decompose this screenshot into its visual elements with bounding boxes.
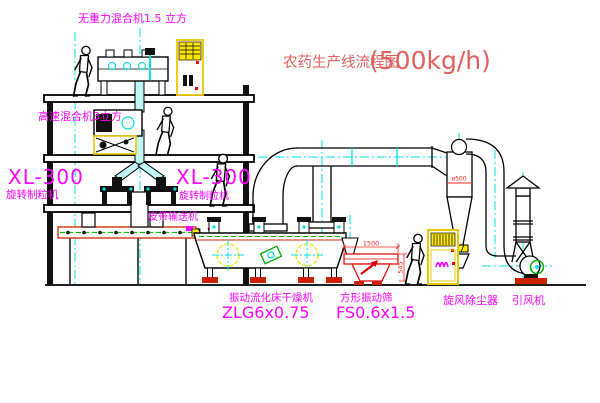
dryer-body: [194, 233, 346, 268]
cad-drawing-canvas: ø500: [0, 0, 600, 403]
dryer-legs: [202, 268, 342, 283]
label-granulator-left-model: XL-300: [8, 165, 84, 189]
screen-length-text: 1500: [363, 240, 380, 248]
rotary-granulator-left: [100, 177, 134, 205]
drawing-title-capacity: (500kg/h): [369, 46, 491, 75]
vibrating-screen: 1500 545: [342, 238, 407, 285]
label-vibrating-screen-model: FS0.6x1.5: [336, 303, 415, 322]
fan-base: [515, 278, 547, 284]
control-cabinet-top: [177, 40, 203, 95]
worker-figure: [156, 107, 174, 155]
label-fluid-bed-dryer-model: ZLG6x0.75: [222, 303, 310, 322]
alarm-light: [195, 87, 198, 90]
control-cabinet-right: [428, 230, 458, 284]
process-flow-diagram: ø500: [0, 0, 600, 403]
worker-figure: [74, 46, 93, 96]
label-granulator-right-model: XL-300: [176, 165, 252, 189]
label-gravity-mixer: 无重力混合机1.5 立方: [78, 11, 187, 25]
alarm-light: [196, 61, 199, 64]
rotary-granulator-right: [144, 177, 178, 205]
cabinet-grill: [179, 42, 201, 60]
alarm-light: [452, 262, 455, 265]
cyclone-outlet-flange: [452, 140, 467, 155]
label-granulator-right-name: 旋转制粒机: [179, 189, 229, 202]
cyclone-diameter-dim: ø500: [451, 176, 466, 183]
worker-figure: [406, 234, 425, 284]
label-granulator-left-name: 旋转制粒机: [6, 188, 59, 201]
mixer-discharge-pipe: [135, 81, 144, 112]
label-high-speed-mixer: 高速混合机3立方: [38, 109, 122, 123]
dryer-exhaust-duct: [249, 146, 447, 231]
screen-width-text: 545: [397, 261, 405, 273]
label-induced-draft-fan: 引风机: [512, 293, 545, 307]
induced-draft-fan: [515, 256, 547, 284]
belt-conveyor: [58, 226, 200, 284]
label-belt-conveyor: 皮带输送机: [148, 210, 198, 223]
mixer-side-valve: [145, 48, 155, 55]
exhaust-stack: [507, 176, 539, 262]
label-cyclone: 旋风除尘器: [443, 293, 498, 307]
